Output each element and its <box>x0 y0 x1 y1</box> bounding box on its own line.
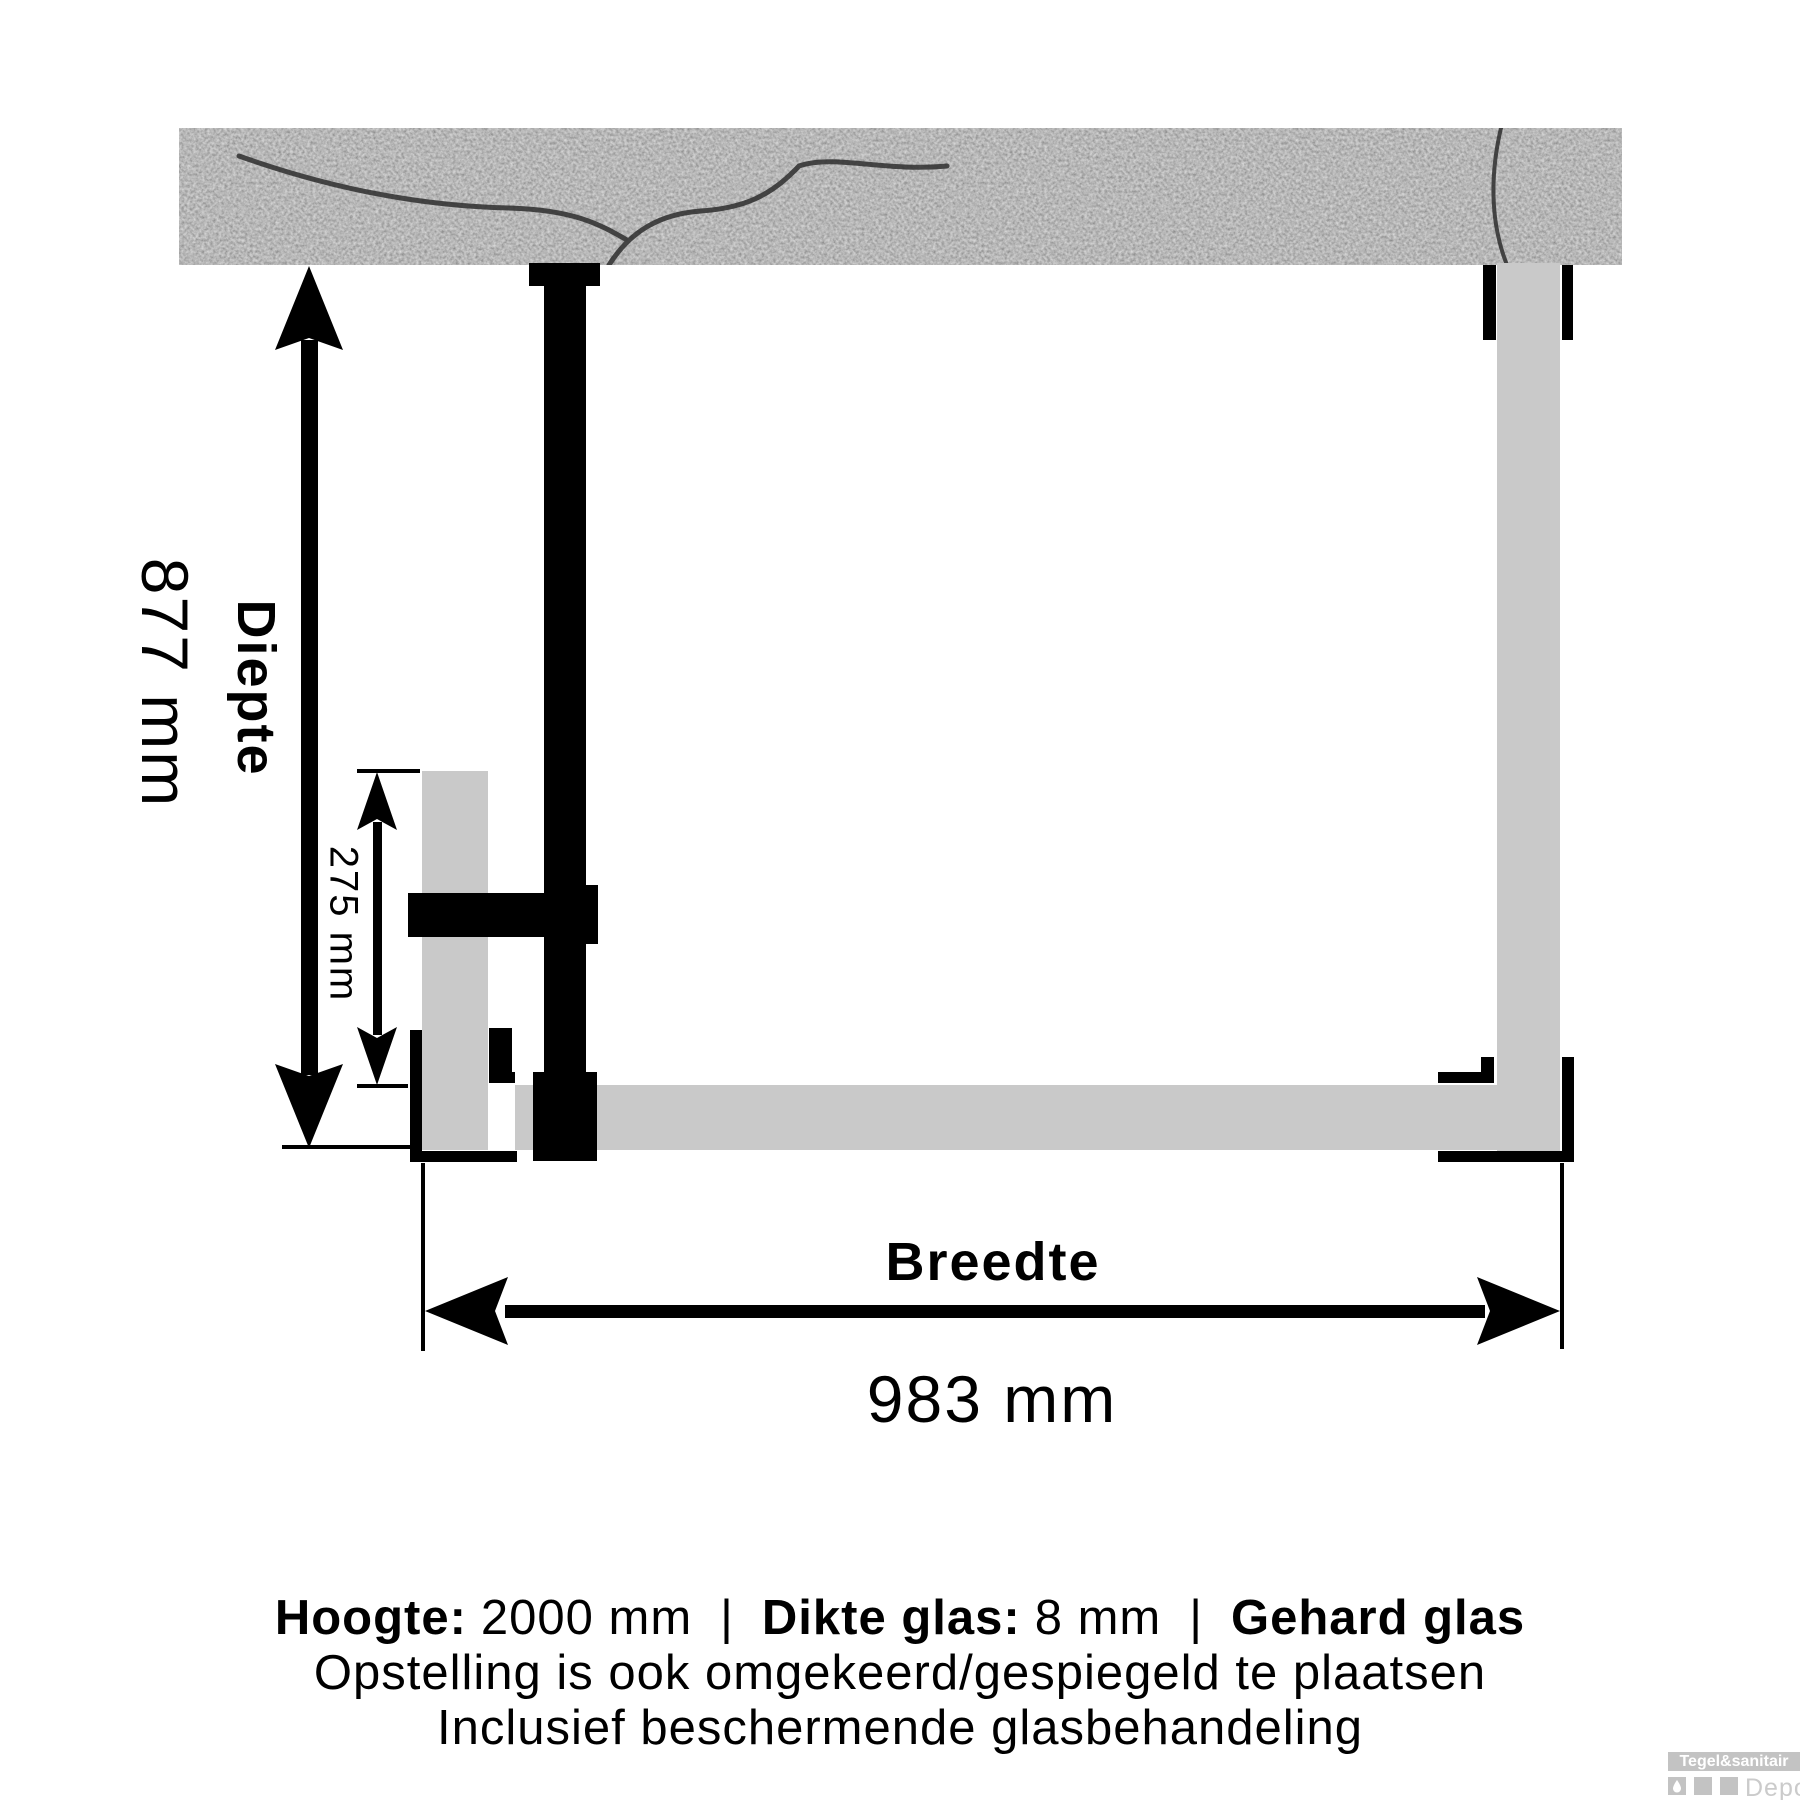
concrete-texture <box>179 128 1622 265</box>
return-panel-clamp-vertical <box>489 1028 512 1072</box>
watermark-brand: Tegel&sanitair <box>1668 1752 1800 1771</box>
water-drop-icon <box>1671 1779 1683 1794</box>
watermark-tile-2 <box>1694 1777 1712 1795</box>
watermark-tile-1 <box>1668 1777 1686 1795</box>
return-panel-clamp-foot <box>489 1072 515 1083</box>
glass-thickness-value: 8 mm <box>1035 1591 1162 1645</box>
shower-dimension-diagram: 877 mm Diepte 275 mm Breedte 983 mm Hoog… <box>0 0 1800 1800</box>
glass-thickness-label: Dikte glas: <box>762 1591 1021 1645</box>
side-panel-wall-clamp-left <box>1483 265 1496 340</box>
depth-tick-line <box>282 1145 410 1149</box>
height-value: 2000 mm <box>481 1591 692 1645</box>
specs-block: Hoogte:2000 mm|Dikte glas:8 mm|Gehard gl… <box>0 1592 1800 1757</box>
width-extension-line-left <box>421 1163 425 1351</box>
left-corner-bracket-vertical <box>410 1030 422 1162</box>
width-value-label: 983 mm <box>867 1361 1117 1437</box>
glass-type: Gehard glas <box>1231 1591 1525 1645</box>
return-glass-panel <box>422 771 488 1150</box>
separator: | <box>720 1592 734 1645</box>
note-line-2: Inclusief beschermende glasbehandeling <box>0 1702 1800 1755</box>
stabilizer-bar-vertical <box>544 286 586 1073</box>
width-title-label: Breedte <box>885 1231 1100 1293</box>
wall-concrete-strip <box>179 128 1622 265</box>
inner-depth-value-label: 275 mm <box>321 846 366 1003</box>
inner-depth-tick-top <box>357 769 420 773</box>
front-glass-panel <box>515 1085 1560 1150</box>
left-corner-bracket-horizontal <box>410 1151 517 1162</box>
right-inner-clamp-nub <box>1481 1057 1494 1083</box>
right-corner-bracket-horizontal <box>1438 1151 1574 1162</box>
specs-line: Hoogte:2000 mm|Dikte glas:8 mm|Gehard gl… <box>0 1592 1800 1645</box>
separator: | <box>1189 1592 1203 1645</box>
side-panel-wall-clamp-right <box>1562 265 1573 340</box>
right-corner-bracket-vertical <box>1562 1057 1574 1162</box>
stabilizer-bar-coupler <box>582 885 598 944</box>
width-extension-line-right <box>1560 1163 1564 1349</box>
watermark-sub: Depot <box>1745 1774 1800 1800</box>
depth-value-label: 877 mm <box>127 558 203 808</box>
wall-mount-profile-cap <box>529 263 600 286</box>
side-glass-panel <box>1497 263 1560 1160</box>
note-line-1: Opstelling is ook omgekeerd/gespiegeld t… <box>0 1647 1800 1700</box>
inner-depth-tick-bottom <box>357 1084 408 1088</box>
height-label: Hoogte: <box>275 1591 467 1645</box>
stabilizer-bar-horizontal <box>408 893 585 937</box>
depth-title-label: Diepte <box>225 599 287 776</box>
front-glass-corner-profile <box>533 1072 597 1161</box>
watermark-tile-3 <box>1720 1777 1738 1795</box>
